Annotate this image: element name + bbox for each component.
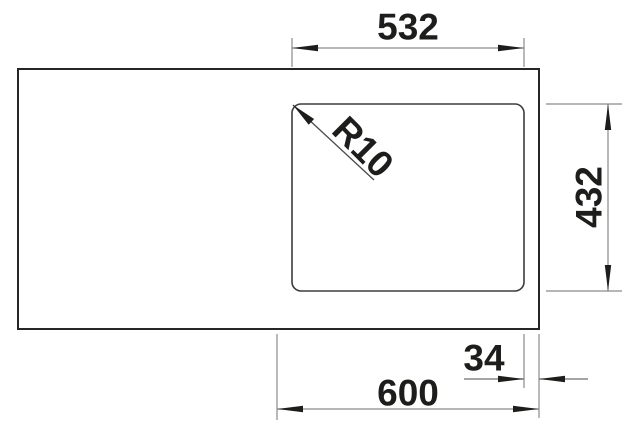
dim-label-top-width: 532 [377, 9, 439, 46]
right-height-arrowhead-bottom [605, 265, 611, 291]
drawing-geometry [0, 0, 632, 435]
dim-label-edge-offset: 34 [463, 340, 504, 377]
dim-label-right-height: 432 [571, 166, 608, 228]
dimension-drawing: 532 432 34 600 R10 [0, 0, 632, 435]
dim-label-bottom-width: 600 [377, 375, 439, 412]
bowl-outline [292, 104, 524, 291]
right-height-arrowhead-top [605, 104, 611, 130]
top-width-arrowhead-right [498, 45, 524, 51]
bottom-width-arrowhead-left [277, 406, 303, 412]
bottom-width-arrowhead-right [513, 406, 539, 412]
top-width-arrowhead-left [292, 45, 318, 51]
edge-offset-arrowhead-right [539, 376, 565, 382]
